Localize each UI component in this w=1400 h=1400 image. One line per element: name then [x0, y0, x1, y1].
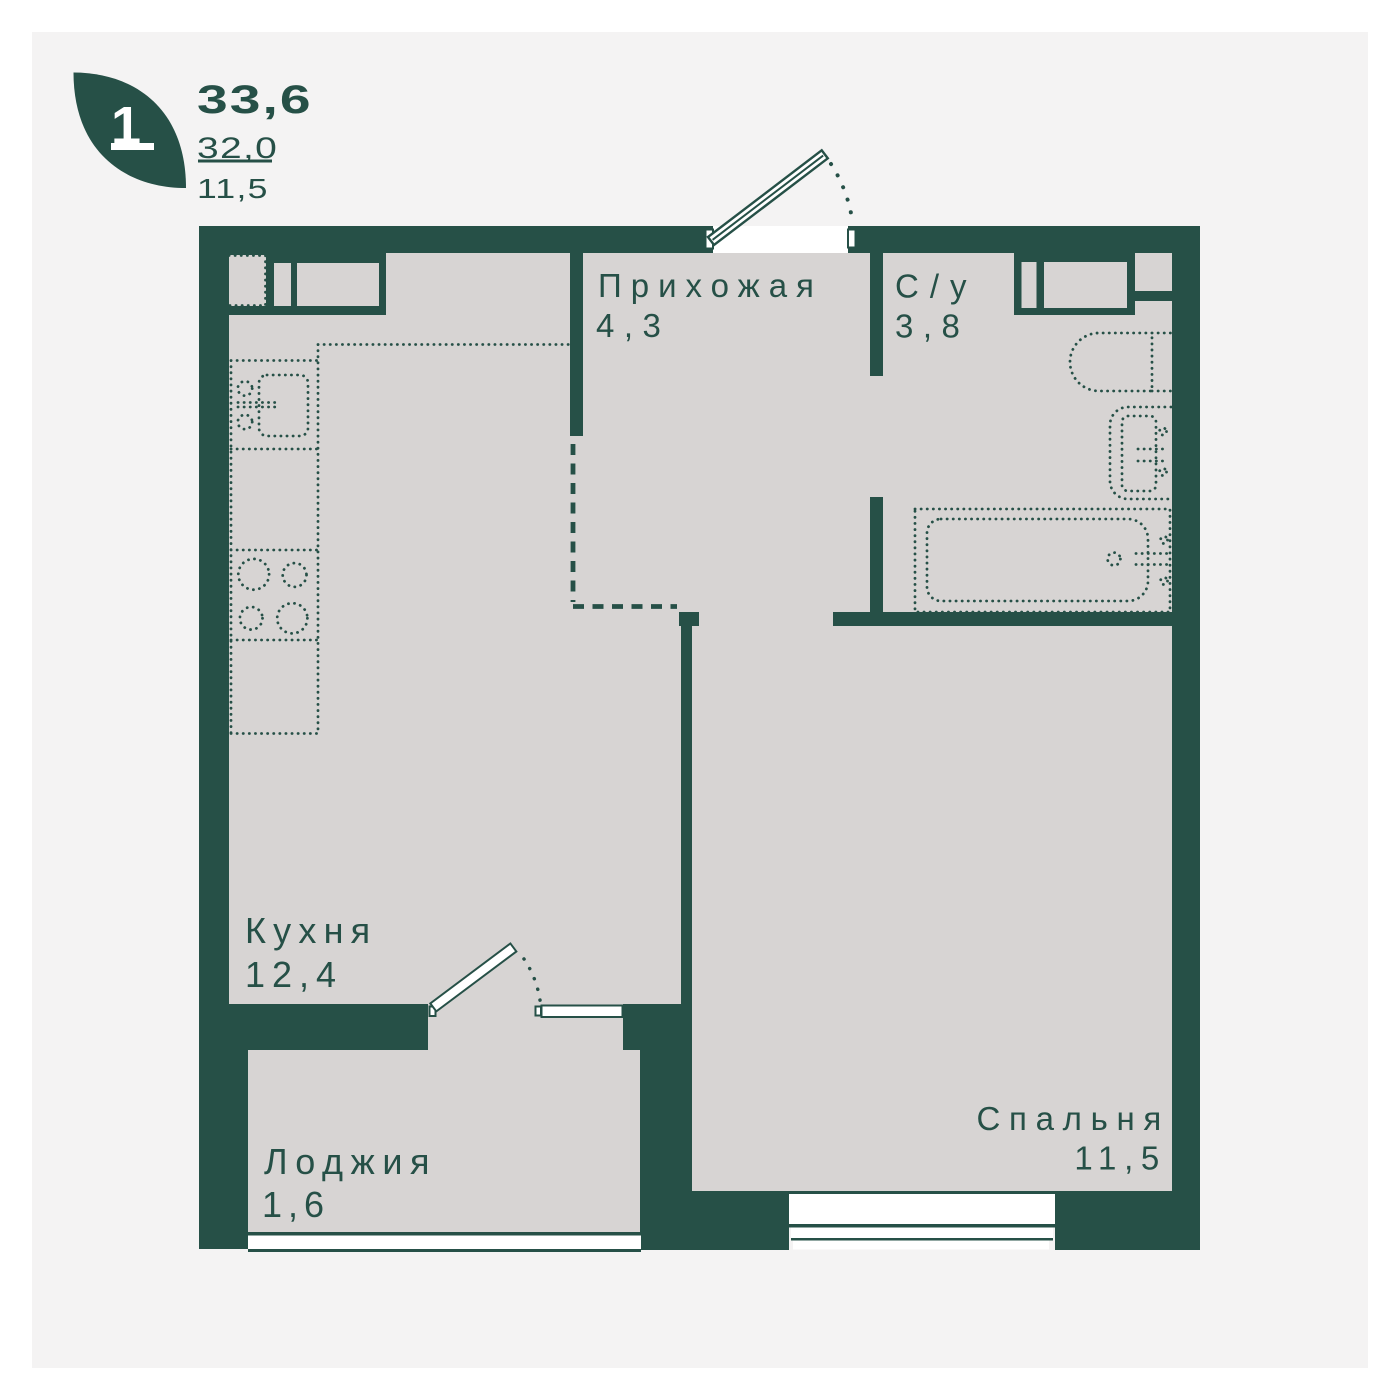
svg-text:33,6: 33,6	[197, 77, 313, 122]
svg-text:С/у: С/у	[895, 268, 978, 305]
svg-text:4,3: 4,3	[596, 307, 670, 344]
svg-text:Лоджия: Лоджия	[264, 1141, 437, 1182]
svg-text:Кухня: Кухня	[245, 910, 377, 951]
svg-text:Прихожая: Прихожая	[598, 267, 823, 304]
svg-text:12,4: 12,4	[245, 954, 343, 995]
svg-text:11,5: 11,5	[197, 173, 269, 204]
svg-text:3,8: 3,8	[895, 308, 969, 345]
svg-text:1,6: 1,6	[262, 1184, 330, 1225]
svg-text:11,5: 11,5	[1074, 1140, 1167, 1177]
svg-text:Спальня: Спальня	[977, 1100, 1171, 1137]
